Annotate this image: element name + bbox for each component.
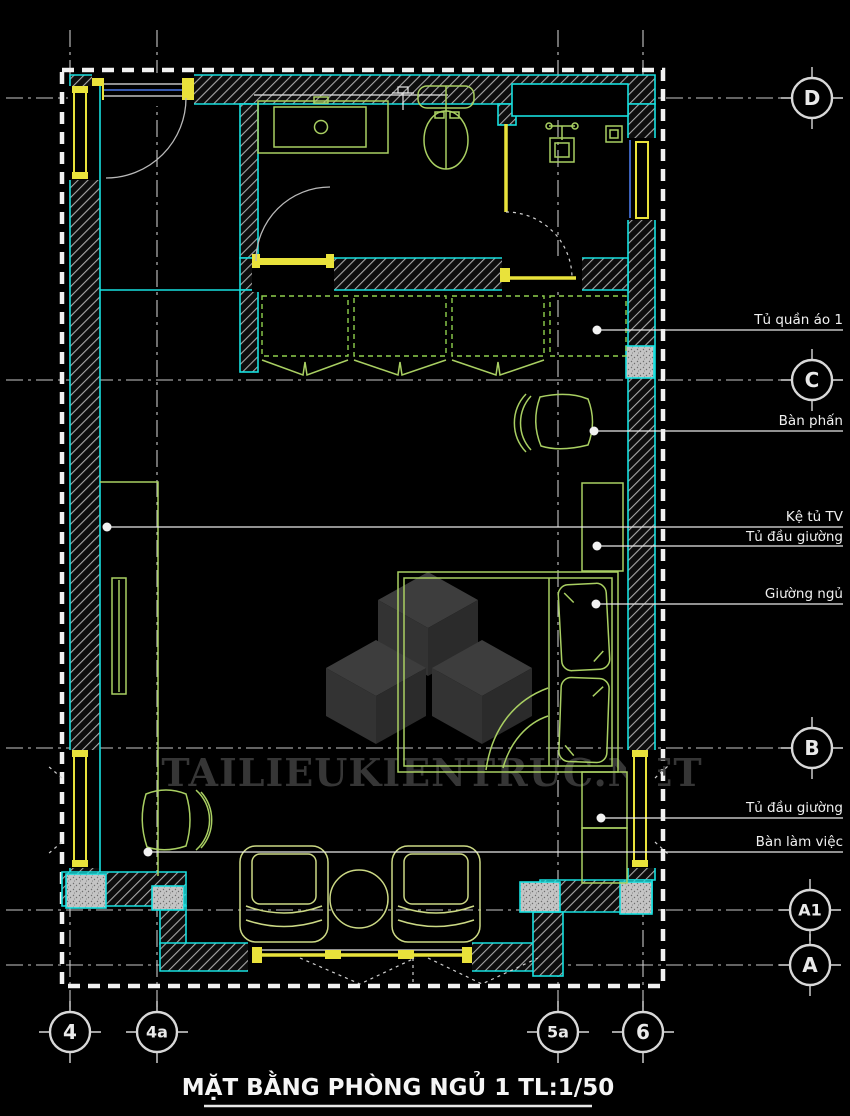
bedroom-floorplan-drawing: TAILIEUKIENTRUC.NET — [0, 0, 850, 1116]
leader-dot — [144, 848, 153, 857]
walls — [62, 75, 655, 976]
desk-chair — [142, 790, 211, 850]
marker-label: A — [802, 953, 818, 977]
pillow — [558, 583, 610, 671]
window-block — [72, 750, 88, 757]
armchair-seat-front — [246, 920, 322, 927]
window-block — [632, 860, 648, 867]
annotation-desk: Bàn làm việc — [144, 834, 844, 857]
coffee-table — [330, 870, 388, 928]
wardrobe — [262, 296, 626, 375]
dressing-stool — [514, 394, 592, 452]
right-window-shower — [626, 138, 658, 220]
door-swing-arc — [256, 187, 330, 261]
tv-console — [100, 482, 158, 876]
watermark-logo-icon — [326, 572, 532, 744]
door-jamb — [462, 947, 472, 963]
annotation-label: Tủ đầu giường — [745, 529, 843, 545]
column — [620, 882, 652, 914]
armchair — [392, 846, 480, 942]
chair-backrest — [196, 790, 210, 850]
column — [626, 346, 654, 378]
wardrobe-cell — [262, 296, 348, 356]
left-window-bottom — [48, 750, 102, 868]
windows-and-doors — [48, 73, 668, 986]
grid-marker-4a: 4a — [126, 1001, 188, 1063]
marker-label: 4 — [63, 1020, 77, 1044]
window-block — [72, 172, 88, 179]
hanger-symbol — [262, 360, 348, 375]
armchair-outline — [240, 846, 328, 942]
leader-dot — [590, 427, 599, 436]
floor-drain — [606, 126, 622, 142]
door-jamb — [326, 254, 334, 268]
annotation-label: Bàn làm việc — [756, 834, 843, 850]
wall-bottom-right-step — [533, 912, 563, 976]
hanger-symbol — [452, 360, 544, 375]
wall-vestibule-divider — [240, 104, 258, 258]
left-window-top — [68, 86, 102, 180]
page-title: MẶT BẰNG PHÒNG NGỦ 1 TL:1/50 — [182, 1070, 614, 1101]
drain — [315, 121, 328, 134]
marker-label: 4a — [146, 1023, 168, 1042]
wall-bottom-left-step — [160, 906, 186, 944]
pillow-outline — [558, 583, 610, 671]
armchair-outline — [392, 846, 480, 942]
entry-door — [92, 73, 194, 178]
marker-label: D — [804, 86, 821, 110]
balcony-door-opening — [248, 941, 472, 973]
door-jamb — [252, 947, 262, 963]
door-hinge-block — [500, 268, 510, 282]
grid-marker-A: A — [779, 934, 841, 996]
drain-grate-inner — [610, 130, 618, 138]
pillow-fold — [564, 593, 574, 603]
basin-outline — [274, 107, 366, 147]
grid-marker-B: B — [781, 717, 843, 779]
grid-marker-D: D — [781, 67, 843, 129]
shower-head-plate — [550, 138, 574, 162]
marker-label: A1 — [798, 901, 822, 920]
leader-dot — [593, 542, 602, 551]
shower-head-inner — [555, 143, 569, 157]
shower-head — [546, 123, 578, 162]
console-outline — [100, 482, 158, 876]
door-swing-arc — [106, 98, 186, 178]
wardrobe-cell — [354, 296, 446, 356]
door-panel-block — [325, 950, 341, 959]
armchair — [240, 846, 328, 942]
annotation-label: Bàn phấn — [779, 413, 843, 429]
annotation-label: Giường ngủ — [765, 586, 843, 602]
window-block — [632, 750, 648, 757]
marker-label: C — [805, 368, 820, 392]
counter-outline — [258, 101, 388, 153]
grid-marker-C: C — [781, 349, 843, 411]
grid-marker-4: 4 — [39, 1001, 101, 1063]
marker-label: B — [804, 736, 819, 760]
annotation-label: Tủ quần áo 1 — [753, 312, 843, 328]
watermark: TAILIEUKIENTRUC.NET — [161, 572, 702, 795]
armchair-cushion — [252, 854, 316, 904]
leader-dot — [592, 600, 601, 609]
armchair-cushion — [404, 854, 468, 904]
floorplan-canvas: TAILIEUKIENTRUC.NET — [0, 0, 850, 1116]
drain-grate — [606, 126, 622, 142]
pillow-fold — [593, 686, 603, 696]
grid-marker-5a: 5a — [527, 1001, 589, 1063]
armchair-seat-front — [398, 920, 474, 927]
pillow-fold — [593, 651, 604, 662]
column — [152, 886, 184, 910]
column — [520, 882, 560, 912]
annotation-label: Kệ tủ TV — [786, 509, 844, 525]
top-niche — [512, 84, 628, 116]
leader-dot — [593, 326, 602, 335]
wall-wardrobe-stub — [240, 290, 258, 372]
grid-marker-A1: A1 — [779, 879, 841, 941]
corner-cabinet — [582, 828, 627, 883]
window-block — [72, 86, 88, 93]
marker-label: 5a — [547, 1023, 569, 1042]
chair-seat — [142, 790, 190, 850]
stool-backrest — [521, 396, 531, 450]
window-opening — [626, 750, 658, 868]
stool-seat — [536, 394, 593, 448]
door-leaf — [254, 258, 332, 265]
column — [66, 874, 106, 908]
grid-marker-6: 6 — [612, 1001, 674, 1063]
wardrobe-cell — [550, 296, 626, 356]
drawing-title: MẶT BẰNG PHÒNG NGỦ 1 TL:1/50 — [182, 1070, 614, 1106]
annotation-tv-shelf: Kệ tủ TV — [103, 509, 844, 532]
bathroom-door — [252, 187, 334, 268]
door-jamb — [182, 78, 194, 100]
window-block — [72, 860, 88, 867]
leader-dot — [103, 523, 112, 532]
wardrobe-cell — [452, 296, 544, 356]
hanger-symbol — [354, 360, 446, 375]
door-panel-block — [398, 950, 414, 959]
leader-dot — [597, 814, 606, 823]
annotation-label: Tủ đầu giường — [745, 800, 843, 816]
marker-label: 6 — [636, 1020, 650, 1044]
